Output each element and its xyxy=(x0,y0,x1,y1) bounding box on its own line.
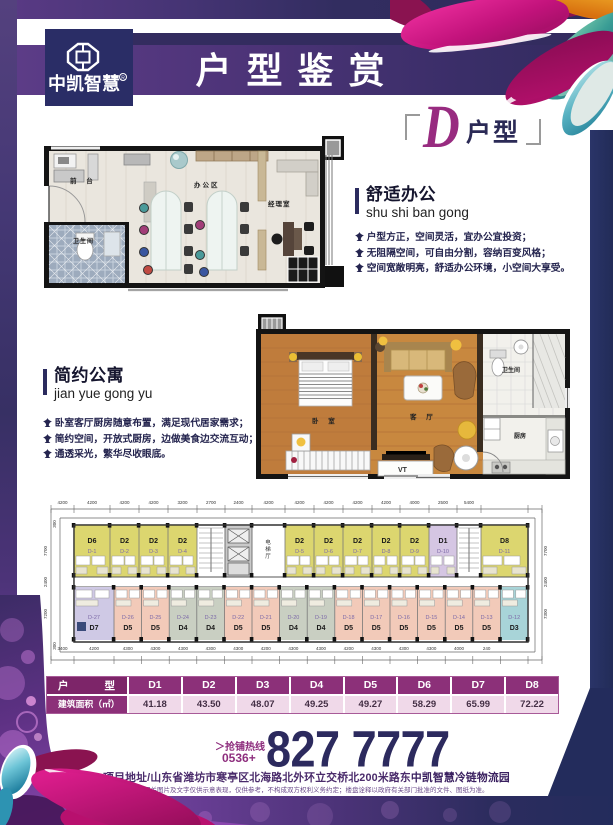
svg-text:D2: D2 xyxy=(382,538,391,545)
svg-text:D-2: D-2 xyxy=(120,549,129,555)
svg-text:4200: 4200 xyxy=(87,500,98,505)
svg-text:D5: D5 xyxy=(344,625,353,632)
svg-text:3200: 3200 xyxy=(177,500,188,505)
svg-text:D8: D8 xyxy=(500,538,509,545)
svg-text:前 台: 前 台 xyxy=(70,176,97,185)
svg-text:2500: 2500 xyxy=(438,500,449,505)
svg-text:D-20: D-20 xyxy=(287,615,299,621)
svg-text:4200: 4200 xyxy=(57,500,68,505)
svg-text:D-1: D-1 xyxy=(88,549,97,555)
svg-text:D2: D2 xyxy=(178,538,187,545)
svg-text:厅: 厅 xyxy=(265,553,271,560)
svg-text:D2: D2 xyxy=(149,538,158,545)
svg-text:4200: 4200 xyxy=(344,646,355,651)
svg-text:D-3: D-3 xyxy=(149,549,158,555)
svg-text:厨房: 厨房 xyxy=(514,432,526,440)
svg-text:D-18: D-18 xyxy=(343,615,355,621)
svg-text:D6: D6 xyxy=(88,538,97,545)
svg-text:卧 室: 卧 室 xyxy=(312,416,339,425)
svg-text:D2: D2 xyxy=(120,538,129,545)
svg-text:D2: D2 xyxy=(324,538,333,545)
svg-text:4300: 4300 xyxy=(288,646,299,651)
svg-text:D5: D5 xyxy=(482,625,491,632)
svg-text:7700: 7700 xyxy=(543,545,548,556)
svg-text:R: R xyxy=(121,76,125,82)
svg-text:D-11: D-11 xyxy=(499,549,511,555)
svg-text:4200: 4200 xyxy=(148,500,159,505)
svg-text:D4: D4 xyxy=(317,625,326,632)
svg-text:300: 300 xyxy=(52,520,57,528)
svg-text:D-9: D-9 xyxy=(410,549,419,555)
svg-text:7700: 7700 xyxy=(43,545,48,556)
svg-text:4300: 4300 xyxy=(371,646,382,651)
svg-text:客 厅: 客 厅 xyxy=(409,412,437,421)
svg-text:4300: 4300 xyxy=(399,646,410,651)
svg-text:2700: 2700 xyxy=(206,500,217,505)
svg-text:2400: 2400 xyxy=(233,500,244,505)
svg-text:240: 240 xyxy=(483,646,491,651)
svg-text:D2: D2 xyxy=(353,538,362,545)
svg-text:4200: 4200 xyxy=(263,500,274,505)
svg-text:D-16: D-16 xyxy=(398,615,410,621)
svg-text:D-15: D-15 xyxy=(425,615,437,621)
svg-text:4200: 4200 xyxy=(323,500,334,505)
svg-text:梯: 梯 xyxy=(265,545,271,553)
svg-text:D-5: D-5 xyxy=(295,549,304,555)
svg-text:4200: 4200 xyxy=(352,500,363,505)
svg-text:4200: 4200 xyxy=(261,646,272,651)
svg-text:卫生间: 卫生间 xyxy=(73,237,94,245)
svg-text:D-10: D-10 xyxy=(437,549,449,555)
svg-text:4000: 4000 xyxy=(409,500,420,505)
svg-text:4000: 4000 xyxy=(454,646,465,651)
svg-text:D5: D5 xyxy=(455,625,464,632)
svg-text:D1: D1 xyxy=(439,538,448,545)
svg-text:D3: D3 xyxy=(510,625,519,632)
svg-text:2400: 2400 xyxy=(43,576,48,587)
svg-text:4200: 4200 xyxy=(294,500,305,505)
svg-text:中凯智慧: 中凯智慧 xyxy=(48,73,120,94)
svg-text:D2: D2 xyxy=(295,538,304,545)
svg-text:D5: D5 xyxy=(427,625,436,632)
svg-text:D5: D5 xyxy=(261,625,270,632)
svg-text:4300: 4300 xyxy=(316,646,327,651)
svg-text:D-14: D-14 xyxy=(453,615,465,621)
svg-text:卫生间: 卫生间 xyxy=(502,366,520,374)
svg-text:D-7: D-7 xyxy=(353,549,362,555)
svg-text:D-13: D-13 xyxy=(481,615,493,621)
svg-text:D-4: D-4 xyxy=(178,549,187,555)
svg-text:D-21: D-21 xyxy=(260,615,272,621)
svg-text:7300: 7300 xyxy=(543,608,548,619)
svg-text:VT: VT xyxy=(398,467,408,474)
svg-text:2400: 2400 xyxy=(543,576,548,587)
svg-text:D5: D5 xyxy=(399,625,408,632)
svg-text:D5: D5 xyxy=(372,625,381,632)
svg-text:D-6: D-6 xyxy=(324,549,333,555)
svg-text:D2: D2 xyxy=(410,538,419,545)
svg-text:D4: D4 xyxy=(289,625,298,632)
svg-text:D-17: D-17 xyxy=(370,615,382,621)
svg-text:经理室: 经理室 xyxy=(268,199,291,208)
svg-text:4300: 4300 xyxy=(426,646,437,651)
svg-text:电: 电 xyxy=(265,538,271,546)
svg-text:D-19: D-19 xyxy=(315,615,327,621)
svg-text:4200: 4200 xyxy=(119,500,130,505)
svg-text:D-12: D-12 xyxy=(508,615,520,621)
svg-text:办公区: 办公区 xyxy=(194,180,220,189)
svg-text:5400: 5400 xyxy=(464,500,475,505)
svg-text:D-8: D-8 xyxy=(382,549,391,555)
svg-text:4200: 4200 xyxy=(381,500,392,505)
